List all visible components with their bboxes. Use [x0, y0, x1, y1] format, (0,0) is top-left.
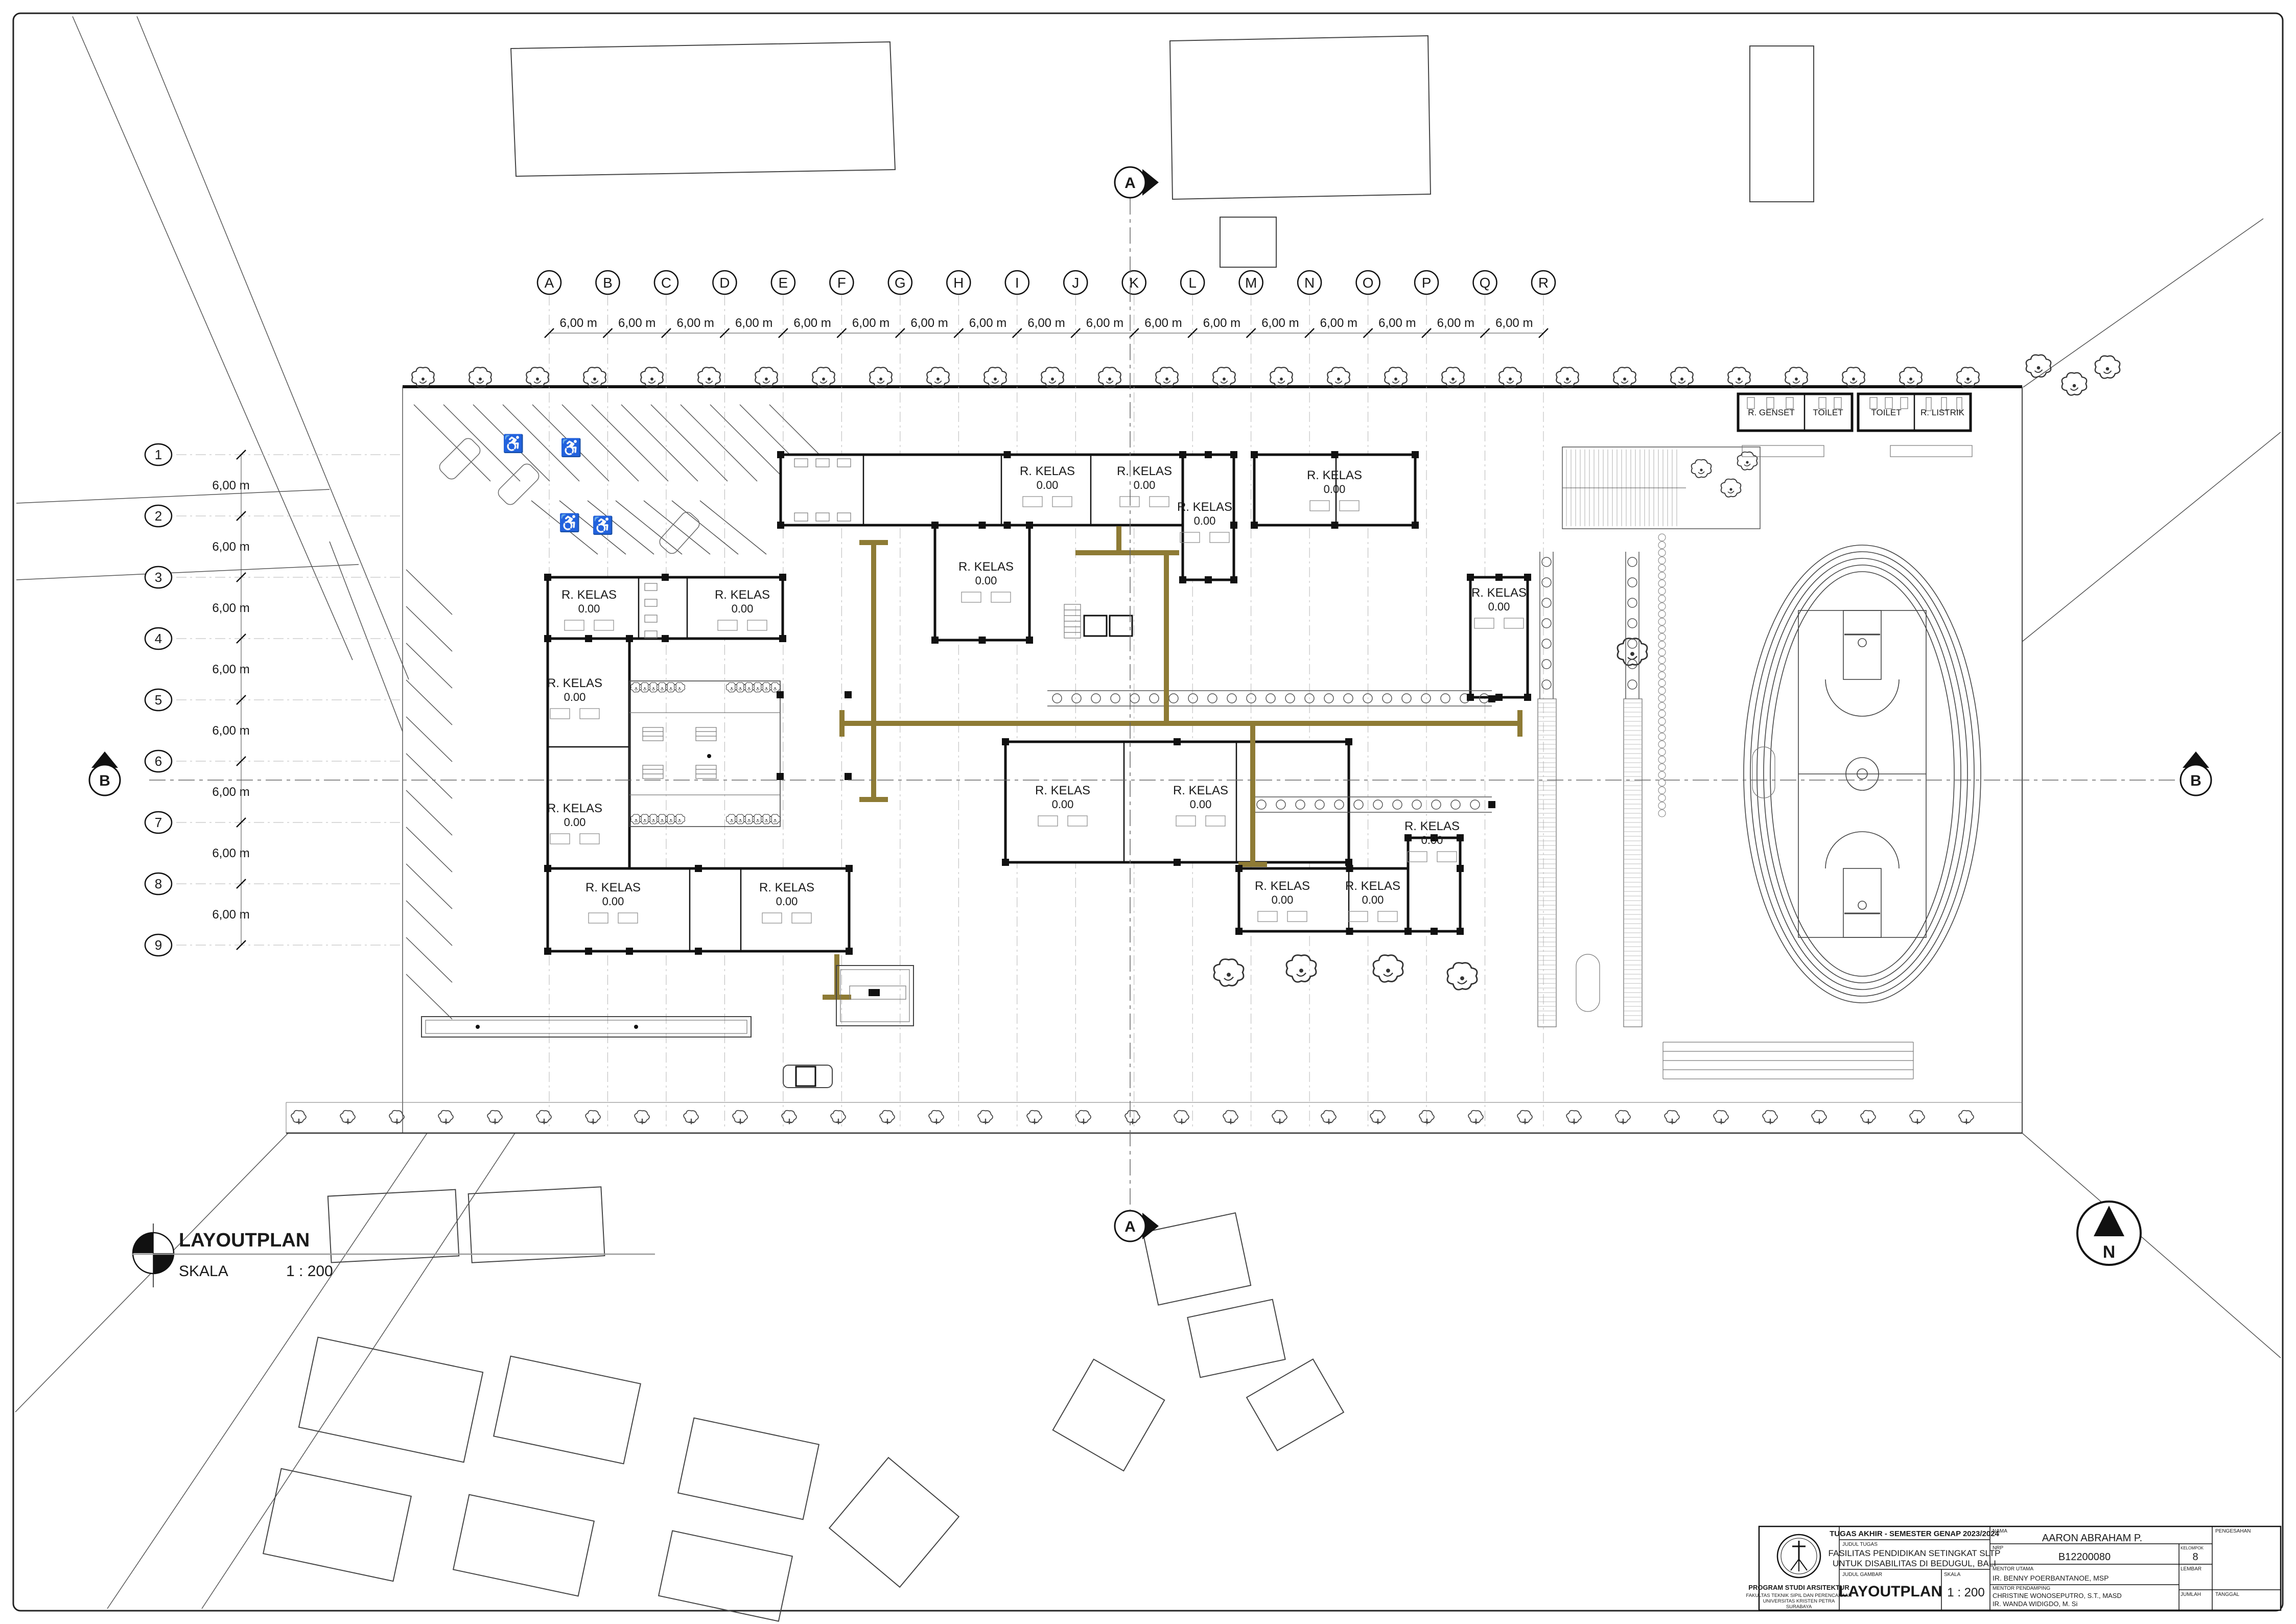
skala-label: SKALA: [1944, 1572, 1961, 1578]
room-level: 0.00: [1421, 834, 1443, 846]
room-label: R. KELAS: [1255, 879, 1310, 893]
room-level: 0.00: [975, 574, 997, 587]
lembar-label: LEMBAR: [2181, 1566, 2201, 1572]
room-label: R. KELAS: [715, 588, 770, 602]
dimension-label: 6,00 m: [212, 663, 249, 676]
room-level: 0.00: [1272, 893, 1294, 906]
judul-tugas-label: JUDUL TUGAS: [1842, 1542, 1878, 1547]
dimension-label: 6,00 m: [212, 601, 249, 615]
section-marker-label: B: [2190, 772, 2201, 789]
room-level: 0.00: [564, 816, 586, 829]
wheelchair-icon: ♿: [592, 515, 614, 535]
mentor-pendamping-label: MENTOR PENDAMPING: [1993, 1586, 2050, 1591]
dimension-label: 6,00 m: [676, 316, 714, 330]
title-block: PROGRAM STUDI ARSITEKTUR FAKULTAS TEKNIK…: [1746, 1526, 2281, 1610]
grid-column-label: I: [1015, 275, 1019, 291]
project-title-2: UNTUK DISABILITAS DI BEDUGUL, BALI: [1833, 1559, 1996, 1568]
dimension-label: 6,00 m: [1437, 316, 1474, 330]
room-label: R. KELAS: [1345, 879, 1400, 893]
dimension-label: 6,00 m: [1320, 316, 1357, 330]
grid-row-label: 9: [155, 937, 162, 953]
room-label: R. KELAS: [1117, 464, 1172, 478]
dimension-label: 6,00 m: [212, 846, 249, 860]
course-header: TUGAS AKHIR - SEMESTER GENAP 2023/2024: [1830, 1529, 1999, 1538]
service-room-label: R. GENSET: [1748, 408, 1795, 417]
grid-column-label: Q: [1480, 275, 1491, 291]
grid-column-label: M: [1245, 275, 1257, 291]
grid-column-label: N: [1304, 275, 1315, 291]
grid-column-label: O: [1363, 275, 1374, 291]
student-name: AARON ABRAHAM P.: [2042, 1533, 2142, 1544]
grid-column-label: B: [603, 275, 613, 291]
plan-scale-value: 1 : 200: [286, 1263, 333, 1280]
kelompok-label: KELOMPOK: [2181, 1546, 2204, 1550]
room-level: 0.00: [1324, 483, 1346, 496]
nrp-label: NRP: [1993, 1545, 2003, 1551]
dimension-label: 6,00 m: [1144, 316, 1182, 330]
wheelchair-icon: ♿: [503, 434, 524, 454]
grid-column-label: L: [1188, 275, 1197, 291]
grid-column-label: A: [545, 275, 554, 291]
grid-column-label: D: [719, 275, 730, 291]
room-label: R. KELAS: [547, 676, 602, 690]
grid-row-label: 4: [155, 631, 162, 646]
grid-column-label: E: [779, 275, 788, 291]
plan-scale-label: SKALA: [179, 1263, 228, 1280]
dimension-label: 6,00 m: [735, 316, 772, 330]
room-label: R. KELAS: [759, 881, 814, 895]
grid-row-label: 1: [155, 447, 162, 462]
room-level: 0.00: [1037, 479, 1059, 491]
service-room-label: TOILET: [1871, 408, 1901, 417]
section-marker-label: A: [1124, 175, 1136, 192]
room-label: R. KELAS: [1035, 784, 1090, 797]
institution-line2: FAKULTAS TEKNIK SIPIL DAN PERENCANAAN: [1746, 1593, 1852, 1598]
room-label: R. KELAS: [1173, 784, 1228, 797]
room-label: R. KELAS: [1177, 500, 1232, 514]
room-level: 0.00: [1190, 798, 1212, 811]
grid-column-label: P: [1422, 275, 1432, 291]
grid-column-label: K: [1129, 275, 1139, 291]
drawing-sheet: A6,00 mB6,00 mC6,00 mD6,00 mE6,00 mF6,00…: [0, 0, 2296, 1624]
grid-row-label: 6: [155, 754, 162, 769]
room-level: 0.00: [1194, 514, 1216, 527]
grid-column-label: H: [953, 275, 964, 291]
room-level: 0.00: [1488, 600, 1510, 613]
grid-column-label: R: [1538, 275, 1549, 291]
mentor-pendamping-2: IR. WANDA WIDIGDO, M. Si: [1993, 1600, 2077, 1608]
mentor-utama-value: IR. BENNY POERBANTANOE, MSP: [1993, 1574, 2108, 1582]
service-room-label: R. LISTRIK: [1920, 408, 1965, 417]
grid-row-label: 8: [155, 876, 162, 891]
dimension-label: 6,00 m: [212, 785, 249, 799]
room-label: R. KELAS: [1471, 586, 1527, 600]
dimension-label: 6,00 m: [1203, 316, 1240, 330]
plan-title: LAYOUTPLAN: [179, 1230, 310, 1251]
room-label: R. KELAS: [561, 588, 617, 602]
north-label: N: [2103, 1242, 2116, 1262]
mentor-utama-label: MENTOR UTAMA: [1993, 1566, 2034, 1572]
institution-line1: PROGRAM STUDI ARSITEKTUR: [1748, 1584, 1849, 1591]
dimension-label: 6,00 m: [618, 316, 655, 330]
dimension-label: 6,00 m: [212, 540, 249, 554]
wheelchair-icon: ♿: [560, 438, 582, 458]
grid-row-label: 3: [155, 570, 162, 585]
room-label: R. KELAS: [1020, 464, 1075, 478]
grid-column-label: C: [661, 275, 671, 291]
dimension-label: 6,00 m: [1495, 316, 1533, 330]
project-title-1: FASILITAS PENDIDIKAN SETINGKAT SLTP: [1829, 1548, 2001, 1558]
dimension-label: 6,00 m: [212, 479, 249, 492]
room-label: R. KELAS: [585, 881, 641, 895]
dimension-label: 6,00 m: [1378, 316, 1416, 330]
institution-line4: SURABAYA: [1786, 1604, 1812, 1610]
institution-line3: UNIVERSITAS KRISTEN PETRA: [1763, 1598, 1835, 1604]
room-level: 0.00: [1052, 798, 1074, 811]
dimension-label: 6,00 m: [212, 908, 249, 922]
jumlah-label: JUMLAH: [2181, 1592, 2201, 1597]
dimension-label: 6,00 m: [212, 724, 249, 738]
dimension-label: 6,00 m: [969, 316, 1006, 330]
room-level: 0.00: [564, 691, 586, 703]
grid-row-label: 2: [155, 508, 162, 524]
dimension-label: 6,00 m: [1261, 316, 1299, 330]
section-marker-label: A: [1124, 1218, 1136, 1235]
wheelchair-icon: ♿: [559, 513, 580, 533]
judul-gambar-label: JUDUL GAMBAR: [1842, 1572, 1882, 1578]
dimension-label: 6,00 m: [560, 316, 597, 330]
dimension-label: 6,00 m: [852, 316, 889, 330]
pengesahan-label: PENGESAHAN: [2215, 1528, 2251, 1534]
nama-label: NAMA: [1993, 1528, 2007, 1534]
kelompok-value: 8: [2192, 1551, 2198, 1563]
room-level: 0.00: [602, 895, 624, 908]
grid-column-label: J: [1072, 275, 1079, 291]
room-label: R. KELAS: [1307, 468, 1362, 482]
room-label: R. KELAS: [1404, 819, 1460, 833]
room-label: R. KELAS: [958, 560, 1014, 574]
nrp-value: B12200080: [2058, 1551, 2111, 1563]
dimension-label: 6,00 m: [793, 316, 831, 330]
room-level: 0.00: [578, 602, 600, 615]
tanggal-label: TANGGAL: [2215, 1592, 2239, 1597]
service-room-label: TOILET: [1813, 408, 1843, 417]
skala-value: 1 : 200: [1947, 1586, 1984, 1599]
grid-column-label: G: [895, 275, 906, 291]
dimension-label: 6,00 m: [910, 316, 948, 330]
north-arrow-icon: N: [2077, 1202, 2141, 1265]
grid-column-label: F: [837, 275, 846, 291]
room-level: 0.00: [1134, 479, 1156, 491]
room-level: 0.00: [732, 602, 754, 615]
room-level: 0.00: [776, 895, 798, 908]
section-marker-label: B: [99, 772, 110, 789]
dimension-label: 6,00 m: [1086, 316, 1123, 330]
mentor-pendamping-1: CHRISTINE WONOSEPUTRO, S.T., MASD: [1993, 1592, 2122, 1599]
dimension-label: 6,00 m: [1027, 316, 1065, 330]
grid-row-label: 7: [155, 815, 162, 830]
room-level: 0.00: [1362, 893, 1384, 906]
room-label: R. KELAS: [547, 802, 602, 815]
drawing-title: LAYOUTPLAN: [1839, 1583, 1942, 1600]
grid-row-label: 5: [155, 692, 162, 708]
